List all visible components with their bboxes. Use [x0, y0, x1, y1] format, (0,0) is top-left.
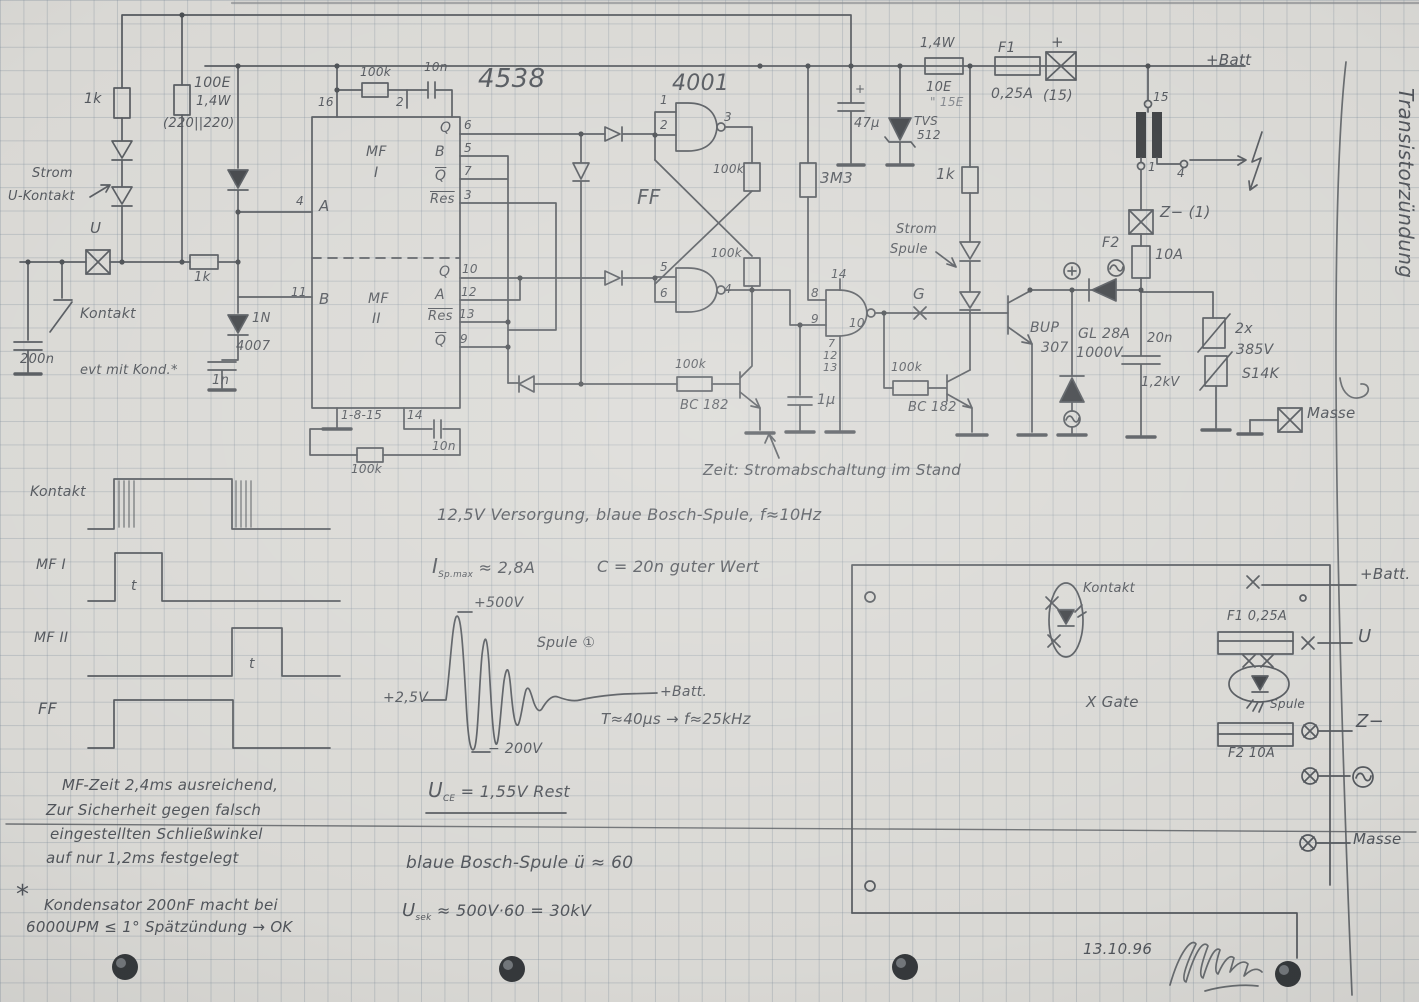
gl-diode-icon: [1060, 378, 1084, 402]
label-15e: " 15E: [930, 96, 964, 109]
nor-gate-icon: [676, 268, 717, 312]
label-4001-p12: 12: [823, 350, 838, 362]
note-mf-2: Zur Sicherheit gegen falsch: [46, 803, 261, 819]
solder-x-icon: [1243, 655, 1255, 667]
solder-x-icon: [1261, 655, 1273, 667]
led-icon: [1058, 610, 1074, 624]
timing-label-mf1: MF I: [36, 558, 66, 573]
capacitor-47u-icon: [838, 66, 864, 163]
board-masse: Masse: [1353, 832, 1402, 848]
label-masse: Masse: [1307, 406, 1356, 422]
resistor-100k-icon: [362, 83, 388, 97]
bup307-transistor-icon: [1008, 327, 1032, 344]
label-mf1: MF: [366, 145, 387, 160]
label-res2: Res: [428, 310, 453, 324]
label-4001-p7: 7: [828, 338, 835, 350]
timing-label-ff: FF: [38, 701, 57, 718]
coil-winding-icon: [1136, 112, 1146, 158]
label-mf1-i: I: [374, 166, 378, 181]
fuse-f2-icon: [1132, 246, 1150, 278]
solder-x-icon: [1302, 637, 1314, 649]
label-4001-p8: 8: [811, 287, 819, 300]
resistor-3m3-icon: [800, 163, 816, 197]
label-gl-v: 1000V: [1076, 346, 1123, 361]
label-z-term: Z− (1): [1160, 205, 1211, 221]
arrow-icon: [90, 185, 110, 197]
diode-icon: [112, 187, 132, 206]
label-pin14: 14: [407, 409, 423, 422]
label-kontakt: Kontakt: [80, 307, 136, 322]
diode-icon: [112, 141, 132, 160]
label-var-2x: 2x: [1235, 322, 1253, 337]
note-usek: Usek ≈ 500V·60 = 30kV: [402, 902, 591, 923]
label-r3m3: 3M3: [820, 171, 853, 187]
label-r1k-mid: 1k: [194, 271, 210, 285]
label-p5: 5: [464, 142, 472, 155]
board-u: U: [1358, 628, 1371, 647]
label-var-s14k: S14K: [1242, 367, 1279, 382]
label-f2-a: 10A: [1155, 248, 1183, 263]
label-in-a: A: [319, 199, 330, 215]
label-coil-4: 4: [1177, 167, 1185, 180]
label-4001-p14: 14: [831, 268, 847, 281]
usek-value: ≈ 500V·60 = 30kV: [437, 901, 591, 920]
wave-peak: +500V: [474, 596, 524, 611]
label-bup: BUP: [1030, 321, 1059, 336]
diode-icon: [508, 376, 677, 392]
diode-icon: [573, 163, 589, 384]
label-qbar1: Q: [435, 169, 446, 184]
label-p7: 7: [464, 165, 472, 178]
label-bup-307: 307: [1041, 341, 1069, 356]
label-f2: F2: [1102, 236, 1120, 251]
label-gate-g: G: [913, 287, 925, 303]
wave-base: +2,5V: [383, 691, 428, 706]
label-mf2-ii: II: [372, 312, 381, 327]
hole-icon: [865, 881, 875, 891]
hole-icon: [865, 592, 875, 602]
uce-symbol: U: [428, 778, 443, 802]
lightning-icon: [1249, 132, 1262, 190]
timing-label-kontakt: Kontakt: [30, 485, 86, 500]
label-p6: 6: [464, 119, 472, 132]
note-kond-1: Kondensator 200nF macht bei: [44, 898, 278, 914]
uce-value: = 1,55V Rest: [461, 782, 570, 801]
capacitor-1u-icon: [788, 325, 812, 430]
timing-t2: t: [249, 657, 255, 672]
label-plus: +: [855, 83, 865, 96]
label-p10: 10: [462, 263, 478, 276]
note-uce: UCE = 1,55V Rest: [428, 780, 570, 804]
label-t15: (15): [1043, 89, 1073, 104]
label-tvs-512: 512: [917, 129, 941, 142]
tvs-diode-icon: [889, 118, 911, 140]
label-c1n: 1n: [212, 374, 229, 388]
label-zeit-note: Zeit: Stromabschaltung im Stand: [703, 463, 961, 479]
note-ratio: blaue Bosch-Spule ü ≈ 60: [406, 855, 633, 873]
nor-gate-icon: [676, 103, 717, 151]
resistor-100k-icon: [357, 448, 383, 462]
label-gl: GL 28A: [1078, 327, 1130, 342]
ic-4538: [310, 66, 605, 462]
usek-symbol: U: [402, 900, 415, 921]
label-u-kontakt: U-Kontakt: [8, 190, 75, 204]
label-in-b: B: [319, 292, 330, 308]
wave-coil: Spule ①: [537, 636, 595, 651]
signature: [1170, 943, 1262, 991]
timing-t1: t: [131, 579, 137, 594]
label-ic4538: 4538: [478, 66, 545, 93]
label-p3: 3: [464, 189, 472, 202]
capacitor-20n-icon: [1122, 278, 1160, 435]
label-a2: A: [435, 288, 445, 303]
label-coil-1: 1: [1148, 161, 1156, 174]
label-r100e: 100E: [194, 76, 231, 91]
label-4001-p2: 2: [660, 119, 668, 132]
punch-holes: [112, 954, 1301, 987]
schematic-page: 1k 100E 1,4W (220||220) Strom U-Kontakt …: [0, 0, 1419, 1002]
title-brace: [1336, 62, 1368, 995]
label-bc182-l: BC 182: [680, 399, 729, 413]
label-4001-p9: 9: [811, 313, 819, 326]
usek-sub: sek: [415, 913, 431, 923]
mf1-waveform: [88, 553, 340, 601]
label-ff: FF: [637, 187, 661, 208]
note-supply: 12,5V Versorgung, blaue Bosch-Spule, f≈1…: [437, 507, 822, 524]
label-r100e-w: 1,4W: [196, 95, 231, 109]
label-p12: 12: [461, 286, 477, 299]
label-pin2: 2: [396, 96, 404, 109]
label-r100e-note: (220||220): [163, 117, 235, 131]
label-r100k-r: 100k: [891, 361, 922, 374]
label-4001-p3: 3: [724, 111, 732, 124]
board-kontakt: Kontakt: [1083, 582, 1135, 596]
label-kond-note: evt mit Kond.*: [80, 364, 178, 378]
note-mf-1: MF-Zeit 2,4ms ausreichend,: [62, 778, 278, 794]
label-c10n-top: 10n: [424, 61, 448, 74]
ff-waveform: [88, 700, 330, 748]
label-c1u: 1µ: [817, 393, 835, 408]
label-gnd-pins: 1-8-15: [341, 409, 382, 422]
label-pin4: 4: [296, 195, 304, 208]
label-t15-plus: +: [1051, 35, 1064, 51]
label-r100k-top: 100k: [360, 66, 391, 79]
label-u-terminal: U: [90, 221, 101, 237]
resistor-100k-icon: [677, 377, 712, 391]
timing-diagram: [88, 479, 340, 748]
label-var-385: 385V: [1236, 343, 1274, 358]
label-res1: Res: [430, 193, 455, 207]
date: 13.10.96: [1083, 942, 1152, 958]
label-bc182-r: BC 182: [908, 401, 957, 415]
diode-1n4007-icon: [228, 170, 248, 188]
coil-winding-icon: [1152, 112, 1162, 158]
label-q2: Q: [439, 265, 450, 280]
wave-neg: − 200V: [488, 742, 542, 757]
label-10e: 10E: [926, 81, 952, 95]
pcb-sketch: [852, 565, 1373, 958]
label-tvs: TVS: [914, 115, 938, 128]
label-10e-w: 1,4W: [920, 37, 955, 51]
resistor-100e-icon: [174, 85, 190, 115]
label-4001-p6: 6: [660, 287, 668, 300]
label-strom2: Strom: [896, 223, 937, 237]
label-f1-a: 0,25A: [991, 87, 1033, 102]
wave-batt: +Batt.: [660, 685, 707, 700]
label-r1k: 1k: [84, 92, 102, 107]
label-r100k-a: 100k: [713, 163, 744, 176]
label-coil-15: 15: [1153, 91, 1169, 104]
label-spule2: Spule: [890, 243, 928, 257]
label-d4007b: 4007: [236, 340, 270, 354]
resistor-100k-icon: [744, 258, 760, 286]
label-c200n: 200n: [20, 353, 54, 367]
label-mf2: MF: [368, 292, 389, 307]
note-star: *: [16, 882, 29, 909]
label-f1: F1: [998, 41, 1016, 56]
wave-period: T≈40µs → f≈25kHz: [601, 712, 751, 728]
note-isp: ISp.max ≈ 2,8A: [432, 556, 535, 580]
isp-value: ≈ 2,8A: [479, 558, 536, 577]
note-c-value: C = 20n guter Wert: [597, 559, 759, 576]
label-strom: Strom: [32, 167, 73, 181]
led-icon: [1252, 676, 1268, 690]
label-q1: Q: [440, 121, 451, 136]
label-pin11: 11: [291, 286, 307, 299]
board-z: Z−: [1356, 713, 1384, 732]
mf2-waveform: [88, 628, 340, 676]
label-r100k-l: 100k: [675, 358, 706, 371]
label-c20n: 20n: [1147, 332, 1173, 346]
label-c20n-v: 1,2kV: [1141, 376, 1180, 390]
coupling-diodes: [508, 127, 677, 392]
label-c10n-bot: 10n: [432, 440, 456, 453]
board-f1: F1 0,25A: [1227, 610, 1287, 624]
label-p9: 9: [460, 333, 468, 346]
note-kond-2: 6000UPM ≤ 1° Spätzündung → OK: [26, 920, 293, 936]
label-d4007a: 1N: [252, 312, 271, 326]
resistor-1k-icon: [190, 255, 218, 269]
label-r1k-sup: 1k: [936, 167, 955, 183]
board-batt: +Batt.: [1360, 567, 1410, 583]
label-r100k-b: 100k: [711, 247, 742, 260]
page-title: Transistorzündung: [1395, 88, 1416, 278]
label-p13: 13: [459, 308, 475, 321]
timing-label-mf2: MF II: [34, 631, 68, 646]
label-4001-p1: 1: [660, 94, 668, 107]
label-4001-p5: 5: [660, 261, 668, 274]
fuse-f1-icon: [1218, 632, 1293, 654]
label-qbar2: Q: [435, 334, 446, 349]
diode-icon: [1092, 279, 1116, 301]
spark-arrow-icon: [1190, 156, 1246, 165]
resistor-100k-icon: [744, 163, 760, 191]
label-4001-p10: 10: [849, 317, 865, 330]
note-mf-3: eingestellten Schließwinkel: [50, 827, 263, 843]
board-gate: X Gate: [1086, 695, 1139, 711]
diode-icon: [605, 271, 655, 285]
label-batt-top: +Batt: [1206, 53, 1251, 69]
label-4001-p4: 4: [724, 283, 732, 296]
label-b1: B: [435, 145, 445, 160]
label-pin16: 16: [318, 96, 334, 109]
arrow-icon: [936, 252, 956, 267]
label-r100k-bot: 100k: [351, 463, 382, 476]
board-spule: Spule: [1270, 698, 1305, 711]
isp-sub: Sp.max: [438, 570, 473, 580]
label-4001-p13: 13: [823, 362, 838, 374]
resistor-1k-icon: [114, 88, 130, 118]
junction-dots: [25, 12, 1150, 386]
resistor-1k-icon: [962, 167, 978, 193]
uce-sub: CE: [443, 794, 455, 804]
diode-icon: [960, 292, 980, 370]
label-c47u: 47µ: [854, 117, 880, 131]
board-f2: F2 10A: [1228, 747, 1275, 761]
oscillogram: [424, 612, 657, 752]
diode-1n4007-icon: [228, 315, 248, 333]
resistor-100k-icon: [893, 381, 928, 395]
solder-x-icon: [1247, 576, 1259, 588]
label-ic4001: 4001: [672, 72, 729, 95]
contact-switch-icon: [50, 262, 72, 332]
diode-icon: [605, 127, 655, 141]
diode-icon: [960, 242, 980, 291]
npn-transistor-icon: [740, 392, 760, 408]
zeit-arrow-icon: [765, 434, 779, 458]
note-mf-4: auf nur 1,2ms festgelegt: [46, 851, 239, 867]
